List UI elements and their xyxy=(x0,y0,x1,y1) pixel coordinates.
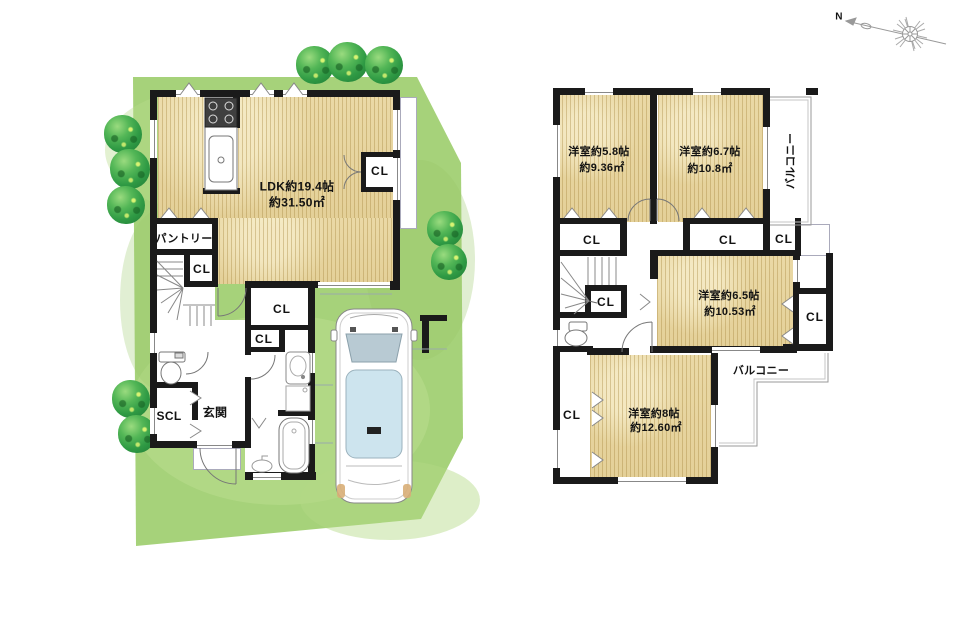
bedroom1-area-label: 約9.36㎡ xyxy=(579,159,624,175)
closet-label: CL xyxy=(371,164,389,178)
closet-label: CL xyxy=(583,233,601,247)
toilet-icon xyxy=(565,322,587,346)
closet-label: CL xyxy=(255,332,273,346)
bedroom2-label: 洋室約6.7帖 xyxy=(679,143,740,159)
window xyxy=(176,90,200,97)
tree-icon xyxy=(110,149,150,189)
window xyxy=(318,282,390,288)
window xyxy=(253,473,281,480)
window xyxy=(763,127,770,189)
window xyxy=(250,90,274,97)
wall xyxy=(150,218,218,224)
window xyxy=(585,88,613,95)
wall xyxy=(556,312,627,318)
bedroom4-area-label: 約12.60㎡ xyxy=(630,419,682,435)
closet-label: CL xyxy=(719,233,737,247)
entrance-door-opening xyxy=(197,441,232,448)
floor-plan-page: LDK約19.4帖 約31.50㎡ パントリー CL CL CL CL SCL … xyxy=(0,0,960,640)
tree-icon xyxy=(107,186,145,224)
closet-label: CL xyxy=(806,310,824,324)
bedroom3-label: 洋室約6.5帖 xyxy=(698,287,759,303)
ldk-label: LDK約19.4帖 xyxy=(260,178,335,195)
balcony-label: バルコニー xyxy=(782,133,798,189)
window xyxy=(693,88,721,95)
car-icon xyxy=(331,309,417,503)
hallway xyxy=(157,320,245,388)
tree-icon xyxy=(112,380,150,418)
compass-icon xyxy=(846,17,946,51)
tree-icon xyxy=(104,115,142,153)
window xyxy=(553,330,560,346)
tree-icon xyxy=(328,42,368,82)
wall xyxy=(650,253,658,279)
compass-north-label: N xyxy=(835,12,843,23)
wall xyxy=(233,95,240,128)
wall xyxy=(308,287,315,480)
window xyxy=(308,420,315,444)
window xyxy=(393,158,400,200)
entrance-porch xyxy=(193,448,241,470)
closet-label: CL xyxy=(597,295,615,309)
window xyxy=(618,477,686,484)
closet-label: CL xyxy=(563,408,581,422)
wall xyxy=(650,95,657,224)
wall xyxy=(793,288,799,350)
closet-label: CL xyxy=(273,302,291,316)
bedroom3-area-label: 約10.53㎡ xyxy=(704,303,756,319)
tree-icon xyxy=(427,211,463,247)
entrance-label: 玄関 xyxy=(203,404,228,421)
wall xyxy=(553,218,627,224)
balcony-label: バルコニー xyxy=(733,362,789,378)
ldk-floor xyxy=(215,218,393,284)
wall xyxy=(203,188,240,194)
wall xyxy=(806,88,818,95)
window xyxy=(793,260,800,282)
window xyxy=(393,110,400,150)
parking-divider-wall xyxy=(422,315,429,353)
shoe-closet-label: SCL xyxy=(157,409,182,423)
tree-icon xyxy=(431,244,467,280)
window xyxy=(308,353,315,373)
closet-label: CL xyxy=(193,262,211,276)
ldk-area-label: 約31.50㎡ xyxy=(269,194,325,211)
window xyxy=(150,120,157,158)
closet-label: CL xyxy=(775,232,793,246)
wall xyxy=(650,250,801,256)
pantry-label: パントリー xyxy=(155,230,212,246)
window xyxy=(711,405,718,447)
wall xyxy=(553,250,627,256)
wall xyxy=(245,377,251,448)
window xyxy=(553,430,560,468)
wall xyxy=(192,382,198,420)
window xyxy=(712,347,760,353)
wall xyxy=(245,283,251,355)
window xyxy=(283,90,307,97)
bedroom1-label: 洋室約5.8帖 xyxy=(568,143,629,159)
wall xyxy=(361,152,366,192)
bedroom2-area-label: 約10.8㎡ xyxy=(687,160,732,176)
balcony-ledge xyxy=(800,224,830,256)
window xyxy=(553,125,560,177)
window xyxy=(150,333,157,353)
wall xyxy=(587,348,629,355)
eave-strip xyxy=(400,97,417,229)
wall xyxy=(683,218,770,224)
wall xyxy=(150,382,198,388)
wall xyxy=(826,253,833,351)
tree-icon xyxy=(365,46,403,84)
wall xyxy=(245,347,285,352)
wall xyxy=(212,218,218,287)
